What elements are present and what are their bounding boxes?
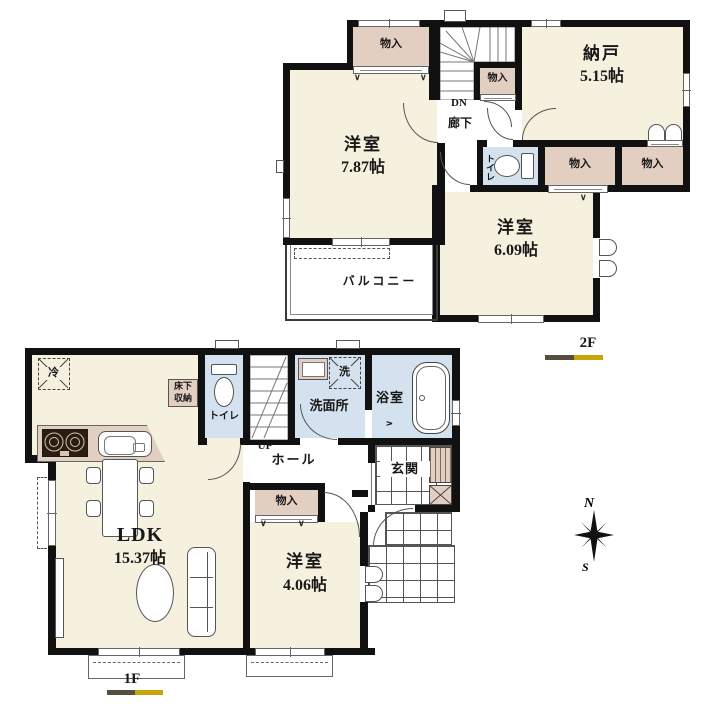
room-label: 洋室 [245,552,365,572]
stairs-dn-label: DN [444,97,474,110]
folding-door-mark-icon: ∨ [298,518,305,529]
wall-segment [483,185,548,192]
sofa-seam [190,607,213,608]
room-label: 洋室 [303,135,423,155]
wall-segment [198,438,207,445]
wall-segment [368,438,375,463]
room-size-label: 7.87帖 [303,158,423,177]
bathtub-drain [419,395,425,401]
storage-label: 物入 [479,73,516,85]
floor-tag-1f: 1F [112,670,152,688]
wall-segment [477,140,487,147]
hall-label: ホール [262,452,326,468]
floor-tag-bar-gold [135,690,163,695]
washroom-label: 洗面所 [296,398,362,414]
underfloor-storage-label-2: 収納 [169,393,197,404]
shoe-cabinet-icon [429,447,452,483]
stairs-1f-icon [250,355,288,440]
sofa-seam [190,577,213,578]
closet-sliding-door [353,66,429,74]
wall-segment [452,348,460,400]
compass-star-icon [568,510,620,576]
wall-segment [250,483,325,490]
room-size-label: 6.09帖 [456,241,576,260]
wall-segment [368,505,375,512]
window [215,340,239,349]
compass-rose: N S [566,498,622,584]
storage-label: 物入 [353,38,429,51]
window [683,73,690,107]
terrace-step [246,655,333,677]
door-arc [484,101,512,127]
wall-segment [352,490,368,497]
floor-plan: ∨ ∨ ∨ 洋室 7.87帖 納戸 5.15帖 洋室 6.09帖 物入 物入 物… [0,0,709,709]
wall-segment [415,505,460,512]
compass-south-label: S [582,560,589,575]
door-arc [324,492,360,537]
stairs-top-window [444,10,466,22]
underfloor-storage-label-1: 床下 [169,381,197,392]
shutter-dashed-box [294,248,390,259]
folding-door-mark-icon: ∨ [420,72,427,83]
toilet-label: トイレ [485,149,494,185]
wall-segment [283,238,332,245]
room-label: LDK [100,523,180,547]
toilet-bowl-icon [214,377,234,407]
wall-segment [432,315,478,322]
wall-segment [283,63,353,70]
washer-space-icon: 洗 [329,357,361,389]
faucet [133,443,145,452]
entrance-label: 玄関 [380,461,430,477]
folding-door-mark-icon: ∨ [260,518,267,529]
storage-label: 物入 [622,158,683,171]
wall-segment [25,348,32,462]
vanity-basin [302,362,325,377]
wall-segment [513,140,647,147]
wall-segment [198,348,205,445]
room-size-label: 4.06帖 [245,576,365,595]
casement-door-leaf [599,239,617,256]
storage-label: 物入 [545,158,615,171]
room-size-label: 5.15帖 [542,67,662,86]
vanity-counter-icon [298,358,328,380]
window [452,400,460,426]
bath-folding-door-icon: ∨ [384,420,395,427]
casement-door-leaf [599,260,617,277]
washer-label: 洗 [334,366,355,379]
shoe-cabinet-counter-icon [429,485,452,505]
sofa-back [207,552,208,632]
casement-door-leaf [365,566,383,583]
balcony-label: バルコニー [325,274,435,288]
floor-tag-2f: 2F [568,334,608,352]
entrance-step-line [371,463,372,505]
wall-segment [360,602,368,655]
toilet-bowl-icon [494,155,520,177]
entrance-door-arc [373,508,413,546]
storage-label: 物入 [255,495,318,508]
wall-segment [593,192,600,238]
wall-segment [429,20,440,100]
floor-tag-bar-dark [545,355,574,360]
casement-door-leaf [648,124,665,141]
coffee-table-icon [136,564,174,622]
wall-segment [48,648,98,655]
stove-icon [42,429,88,457]
wall-segment [452,425,460,510]
folding-door-mark-icon: ∨ [580,192,587,203]
folding-door-mark-icon: ∨ [354,72,361,83]
chair-icon [139,500,154,517]
chair-icon [139,467,154,484]
wall-segment [683,107,690,192]
room-label: 洋室 [456,218,576,238]
bathroom-label: 浴室 [366,390,414,406]
window [336,340,360,349]
terrace-dashed-line [251,662,328,663]
wall-segment [338,438,452,445]
kitchen-sink-icon [98,431,152,457]
floor-tag-bar-dark [107,690,135,695]
toilet-label: トイレ [205,411,243,423]
wall-niche [276,160,284,173]
window [358,20,420,27]
floor-tag-bar-gold [574,355,603,360]
wall-segment [243,348,250,440]
terrace-dashed-line [93,662,180,663]
wall-segment [288,348,295,440]
window [48,480,56,546]
fridge-label: 冷 [43,367,64,380]
door-threshold [647,140,683,147]
fridge-space-icon: 冷 [38,358,70,390]
stairs-2f-winder-icon [440,27,515,62]
wall-segment [470,185,483,192]
bathtub-icon [412,362,450,434]
room-size-label: 15.37帖 [92,549,188,568]
toilet-tank-icon [211,364,237,375]
hallway-label: 廊下 [438,116,482,130]
wall-segment [544,315,600,322]
wall-segment [474,62,517,68]
window [283,198,290,238]
closet-door [480,94,516,101]
shutter-dashed-box [37,477,47,549]
stairs-2f-treads-icon [440,62,474,100]
tv-board-icon [55,558,64,638]
window [531,20,561,27]
underfloor-storage-box: 床下 収納 [168,379,198,407]
room-label: 納戸 [542,44,662,64]
casement-door-leaf [665,124,682,141]
sink-basin [104,436,136,455]
wall-segment [683,20,690,73]
wall-segment [608,185,690,192]
closet-sliding-door [548,185,608,193]
casement-door-leaf [365,585,383,602]
chair-icon [86,467,101,484]
sofa-icon [187,547,216,637]
toilet-tank-icon [521,153,534,179]
chair-icon [86,500,101,517]
window [478,315,544,323]
